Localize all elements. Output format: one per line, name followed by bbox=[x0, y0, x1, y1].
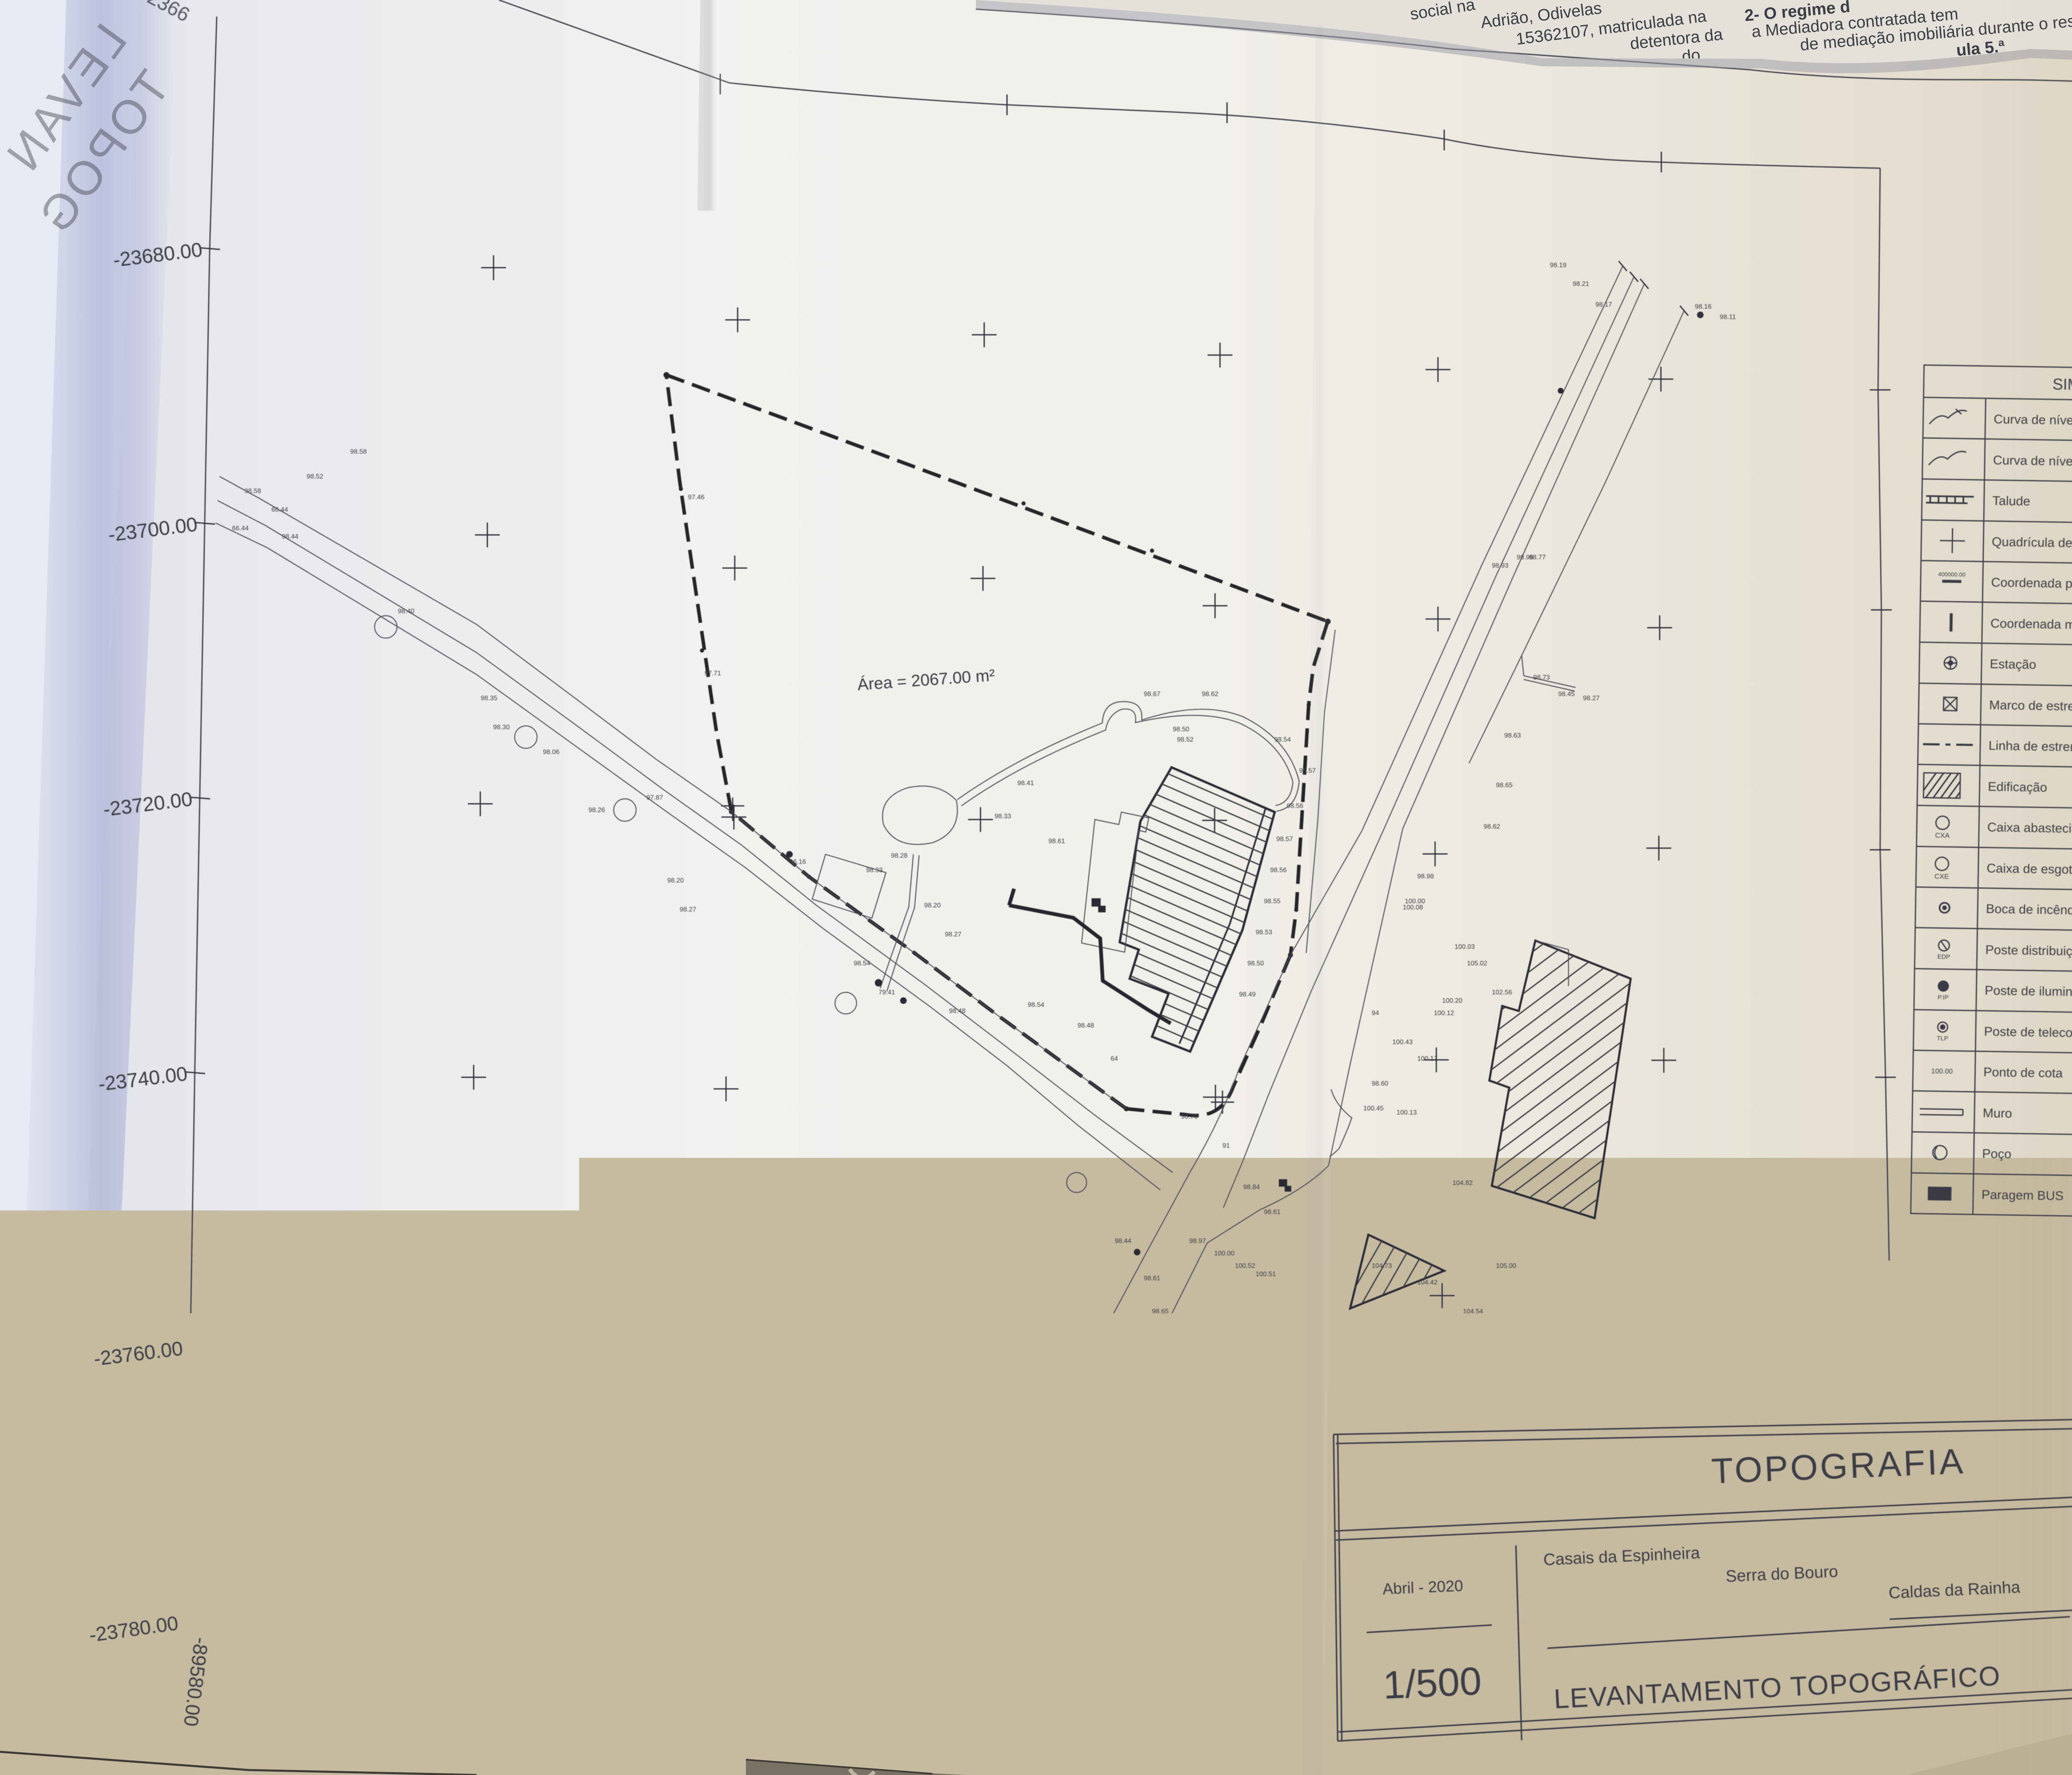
svg-text:TLP: TLP bbox=[1937, 1035, 1949, 1042]
svg-text:100.00: 100.00 bbox=[1405, 898, 1425, 905]
svg-text:100.13: 100.13 bbox=[1397, 1109, 1417, 1116]
svg-text:98.65: 98.65 bbox=[1496, 782, 1513, 789]
svg-text:105.00: 105.00 bbox=[1496, 1262, 1516, 1270]
svg-text:102.08: 102.08 bbox=[1363, 1337, 1384, 1344]
svg-text:100.52: 100.52 bbox=[1235, 1262, 1255, 1270]
svg-text:98.30: 98.30 bbox=[493, 724, 510, 731]
svg-text:98.93: 98.93 bbox=[1492, 562, 1508, 569]
svg-text:97.87: 97.87 bbox=[646, 794, 663, 801]
svg-text:98.62: 98.62 bbox=[1202, 691, 1218, 698]
svg-text:98.73: 98.73 bbox=[1533, 674, 1550, 681]
svg-text:98.20: 98.20 bbox=[667, 877, 684, 884]
svg-text:98.97: 98.97 bbox=[1189, 1238, 1206, 1245]
svg-text:98.65: 98.65 bbox=[1152, 1308, 1169, 1315]
svg-text:98.77: 98.77 bbox=[1529, 554, 1546, 561]
svg-text:98.61: 98.61 bbox=[1264, 1209, 1280, 1216]
svg-text:100.26: 100.26 bbox=[1021, 1569, 1042, 1576]
svg-text:98.40: 98.40 bbox=[398, 608, 414, 615]
svg-text:98.61: 98.61 bbox=[1048, 838, 1065, 845]
svg-text:98.50: 98.50 bbox=[1247, 960, 1264, 967]
svg-text:104.54: 104.54 bbox=[1463, 1308, 1483, 1315]
svg-text:98.50: 98.50 bbox=[1173, 726, 1189, 733]
svg-text:-89520.00: -89520.00 bbox=[973, 1586, 998, 1676]
svg-text:100.19: 100.19 bbox=[1355, 1594, 1375, 1601]
svg-text:98.54: 98.54 bbox=[854, 960, 870, 967]
svg-text:98.16: 98.16 bbox=[1695, 303, 1711, 310]
svg-text:98.45: 98.45 bbox=[1558, 691, 1575, 698]
svg-text:98.27: 98.27 bbox=[1583, 695, 1600, 702]
svg-text:98.11: 98.11 bbox=[1720, 314, 1736, 321]
svg-text:98.35: 98.35 bbox=[481, 695, 497, 702]
svg-text:98.57: 98.57 bbox=[1276, 836, 1293, 843]
svg-text:100.20: 100.20 bbox=[1442, 997, 1462, 1004]
svg-text:94: 94 bbox=[1372, 1010, 1379, 1017]
svg-text:100.25: 100.25 bbox=[1119, 1436, 1139, 1444]
svg-text:66.44: 66.44 bbox=[232, 525, 249, 532]
svg-text:98.48: 98.48 bbox=[1077, 1022, 1094, 1029]
svg-text:BUS: BUS bbox=[1933, 1191, 1946, 1198]
svg-text:CXA: CXA bbox=[1935, 832, 1950, 840]
svg-text:1/500: 1/500 bbox=[1382, 1659, 1482, 1707]
svg-text:104.42: 104.42 bbox=[1417, 1279, 1438, 1286]
svg-text:101.04: 101.04 bbox=[1202, 1354, 1222, 1361]
svg-text:100.17: 100.17 bbox=[1417, 1055, 1438, 1062]
svg-text:64: 64 bbox=[1111, 1055, 1118, 1062]
svg-text:100.28: 100.28 bbox=[1368, 1602, 1388, 1609]
svg-text:98.76: 98.76 bbox=[1181, 1113, 1198, 1120]
svg-text:98.28: 98.28 bbox=[891, 852, 908, 859]
svg-text:100.08: 100.08 bbox=[1403, 904, 1423, 911]
svg-text:98.53: 98.53 bbox=[1256, 929, 1272, 936]
svg-text:102.56: 102.56 bbox=[1492, 989, 1512, 996]
svg-text:98.44: 98.44 bbox=[282, 533, 298, 540]
svg-text:400000.00: 400000.00 bbox=[1938, 571, 1966, 578]
svg-text:CXE: CXE bbox=[1934, 873, 1949, 881]
svg-text:98.21: 98.21 bbox=[1573, 281, 1589, 288]
svg-text:98.54: 98.54 bbox=[1274, 736, 1291, 743]
svg-text:100.43: 100.43 bbox=[1392, 1039, 1413, 1046]
svg-text:100.51: 100.51 bbox=[1256, 1271, 1276, 1278]
svg-text:66.44: 66.44 bbox=[271, 506, 288, 513]
svg-text:98.48: 98.48 bbox=[949, 1008, 966, 1015]
svg-text:98.41: 98.41 bbox=[1017, 780, 1034, 787]
svg-text:98.84: 98.84 bbox=[1243, 1184, 1260, 1191]
svg-text:100.41: 100.41 bbox=[978, 1537, 998, 1544]
svg-text:98.67: 98.67 bbox=[1144, 691, 1160, 698]
svg-text:Abril - 2020: Abril - 2020 bbox=[1382, 1577, 1464, 1598]
svg-text:98.33: 98.33 bbox=[995, 813, 1011, 820]
svg-text:98.58: 98.58 bbox=[244, 488, 261, 495]
svg-text:104.73: 104.73 bbox=[1372, 1262, 1392, 1270]
svg-text:105.02: 105.02 bbox=[1467, 960, 1487, 967]
svg-text:98.27: 98.27 bbox=[945, 931, 961, 938]
svg-text:P.IP: P.IP bbox=[1938, 994, 1949, 1001]
svg-text:100.14: 100.14 bbox=[956, 1524, 976, 1531]
svg-text:100.21: 100.21 bbox=[1061, 1400, 1081, 1407]
svg-text:100.45: 100.45 bbox=[1363, 1105, 1384, 1112]
svg-text:105.01: 105.01 bbox=[1525, 1358, 1545, 1365]
svg-text:104.82: 104.82 bbox=[1452, 1180, 1473, 1187]
svg-text:100.00: 100.00 bbox=[1214, 1250, 1234, 1257]
svg-text:98.19: 98.19 bbox=[1550, 262, 1566, 269]
svg-text:91: 91 bbox=[1222, 1142, 1230, 1149]
svg-text:98.56: 98.56 bbox=[1287, 803, 1303, 810]
svg-text:100.03: 100.03 bbox=[1455, 943, 1475, 950]
svg-text:98.58: 98.58 bbox=[350, 448, 367, 455]
svg-text:98.52: 98.52 bbox=[1177, 736, 1193, 743]
svg-text:EDP: EDP bbox=[1937, 953, 1950, 960]
svg-text:98.54: 98.54 bbox=[1028, 1001, 1044, 1008]
svg-text:98.61: 98.61 bbox=[1144, 1275, 1160, 1282]
svg-text:98.17: 98.17 bbox=[1595, 301, 1612, 308]
svg-text:98.63: 98.63 bbox=[1504, 732, 1521, 739]
svg-text:98.55: 98.55 bbox=[1264, 898, 1280, 905]
svg-text:-89500.00: -89500.00 bbox=[1216, 1575, 1242, 1665]
svg-text:98.98: 98.98 bbox=[1417, 873, 1434, 880]
svg-text:100.00: 100.00 bbox=[1931, 1067, 1953, 1075]
svg-text:104.27: 104.27 bbox=[1426, 1399, 1446, 1406]
svg-text:100.67: 100.67 bbox=[1181, 1345, 1201, 1352]
svg-text:100.12: 100.12 bbox=[1434, 1010, 1454, 1017]
svg-text:79.41: 79.41 bbox=[879, 989, 895, 996]
svg-text:100.00: 100.00 bbox=[1039, 1392, 1060, 1399]
svg-text:98.26: 98.26 bbox=[588, 807, 605, 814]
svg-text:98.52: 98.52 bbox=[307, 473, 323, 480]
svg-text:98.49: 98.49 bbox=[1239, 991, 1256, 998]
svg-text:98.44: 98.44 bbox=[1115, 1238, 1131, 1245]
svg-text:98.56: 98.56 bbox=[1270, 867, 1287, 874]
svg-text:98.06: 98.06 bbox=[543, 749, 559, 756]
svg-text:96.16: 96.16 bbox=[789, 858, 806, 866]
svg-text:98.33: 98.33 bbox=[866, 867, 883, 874]
svg-text:98.62: 98.62 bbox=[1484, 823, 1500, 830]
svg-text:98.60: 98.60 bbox=[1372, 1080, 1388, 1087]
svg-text:98.20: 98.20 bbox=[924, 902, 941, 909]
